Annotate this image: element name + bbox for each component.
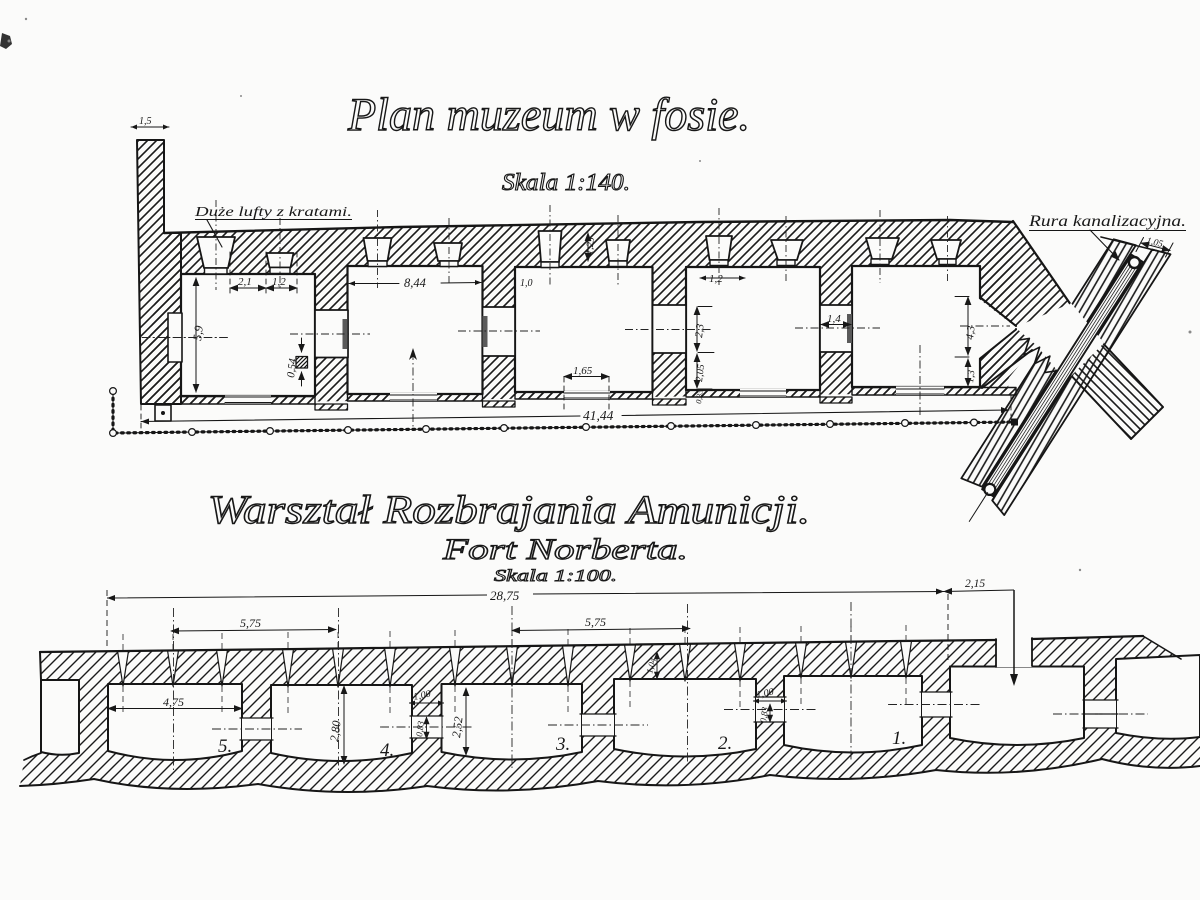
svg-text:1,4: 1,4 — [827, 313, 841, 325]
svg-text:1.: 1. — [892, 728, 906, 749]
svg-text:1,65: 1,65 — [573, 365, 593, 377]
svg-text:0,54: 0,54 — [285, 357, 299, 378]
svg-text:28,75: 28,75 — [490, 588, 520, 603]
svg-text:1,5: 1,5 — [139, 116, 152, 127]
svg-text:0,83: 0,83 — [414, 720, 426, 737]
svg-text:4.: 4. — [380, 740, 394, 761]
svg-text:2,15: 2,15 — [965, 578, 985, 590]
svg-text:5,75: 5,75 — [585, 615, 606, 629]
svg-text:1,0: 1,0 — [520, 278, 533, 289]
svg-text:5,9: 5,9 — [190, 325, 206, 342]
svg-text:4,3: 4,3 — [964, 325, 978, 341]
svg-text:5.: 5. — [218, 736, 232, 757]
svg-text:Skala 1:140.: Skala 1:140. — [502, 170, 630, 196]
svg-text:0,83: 0,83 — [758, 706, 770, 723]
svg-text:41,44: 41,44 — [583, 408, 614, 423]
svg-text:2,05: 2,05 — [694, 364, 707, 383]
svg-text:1,25: 1,25 — [584, 237, 597, 256]
svg-text:Rura kanalizacyjna.: Rura kanalizacyjna. — [1028, 213, 1186, 230]
svg-text:3.: 3. — [555, 734, 570, 755]
svg-text:Fort Norberta.: Fort Norberta. — [442, 533, 688, 566]
svg-text:8,44: 8,44 — [404, 276, 426, 290]
svg-text:2,3: 2,3 — [693, 323, 707, 339]
svg-text:2,52: 2,52 — [449, 716, 465, 739]
svg-text:Plan muzeum w fosie.: Plan muzeum w fosie. — [347, 89, 750, 141]
svg-text:4,75: 4,75 — [163, 695, 184, 709]
svg-text:0,33: 0,33 — [694, 389, 705, 404]
svg-text:1,2: 1,2 — [709, 273, 723, 285]
svg-text:Warształ Rozbrajania Amunicji.: Warształ Rozbrajania Amunicji. — [208, 487, 810, 532]
svg-text:Duże lufty z kratami.: Duże lufty z kratami. — [194, 205, 352, 220]
svg-text:2,80: 2,80 — [327, 720, 343, 743]
svg-text:1,3: 1,3 — [965, 370, 977, 384]
svg-text:2.: 2. — [718, 733, 732, 754]
svg-text:2,1: 2,1 — [238, 276, 252, 288]
svg-text:Skala 1:100.: Skala 1:100. — [494, 566, 617, 585]
svg-text:1,2: 1,2 — [272, 276, 286, 288]
svg-text:5,75: 5,75 — [240, 616, 261, 630]
